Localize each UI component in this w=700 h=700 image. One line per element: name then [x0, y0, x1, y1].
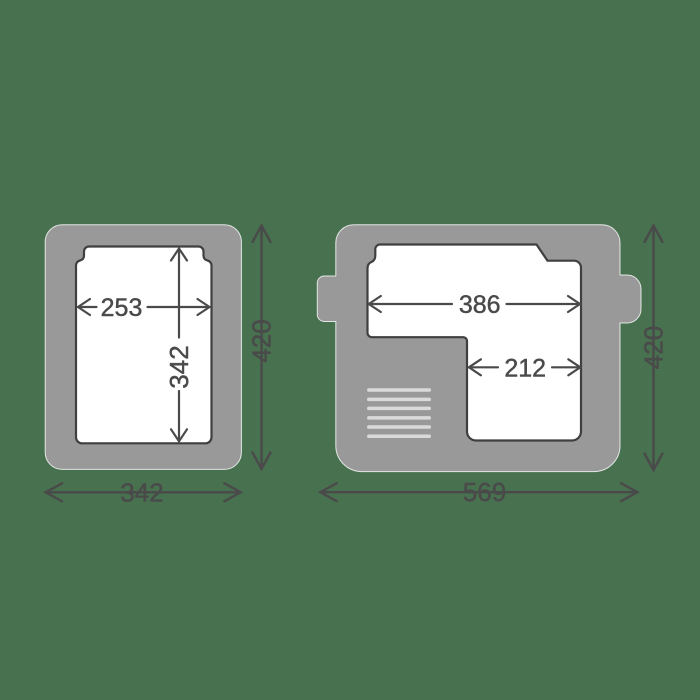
svg-text:569: 569	[463, 477, 506, 507]
svg-text:342: 342	[164, 345, 194, 388]
svg-text:253: 253	[101, 294, 143, 322]
svg-text:420: 420	[247, 319, 277, 362]
svg-text:212: 212	[504, 354, 546, 382]
svg-text:386: 386	[459, 291, 501, 319]
svg-text:420: 420	[639, 326, 669, 369]
svg-text:342: 342	[120, 477, 163, 507]
